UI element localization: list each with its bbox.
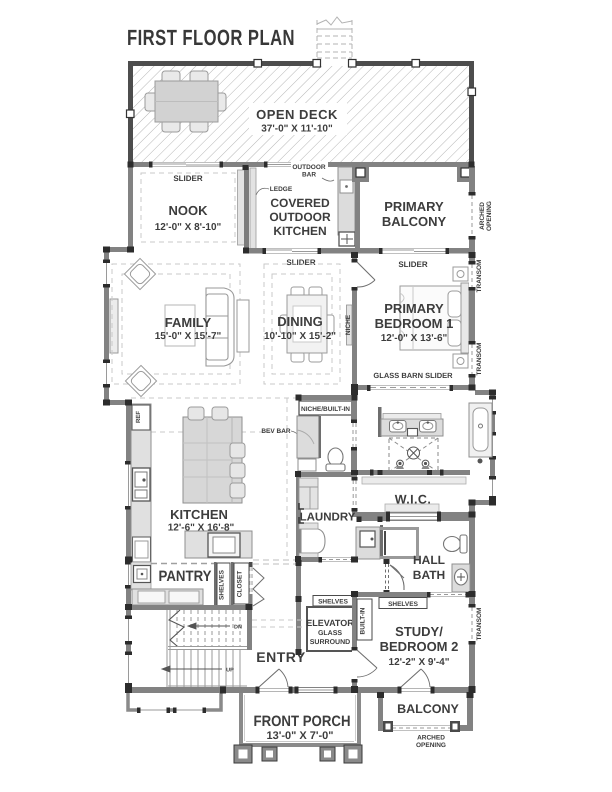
svg-text:BAR: BAR <box>302 172 316 179</box>
svg-text:NICHE: NICHE <box>345 314 352 335</box>
svg-text:STUDY/: STUDY/ <box>395 624 443 639</box>
svg-text:DN: DN <box>234 625 242 631</box>
svg-text:W.I.C.: W.I.C. <box>395 493 431 507</box>
svg-text:BEDROOM 1: BEDROOM 1 <box>375 316 454 331</box>
svg-text:GLASS: GLASS <box>318 630 342 637</box>
svg-text:10'-10" X 15'-2": 10'-10" X 15'-2" <box>264 331 336 342</box>
svg-text:37'-0" X 11'-10": 37'-0" X 11'-10" <box>261 124 333 135</box>
svg-text:FAMILY: FAMILY <box>165 315 212 330</box>
svg-text:SHELVES: SHELVES <box>318 599 349 606</box>
svg-text:BEDROOM 2: BEDROOM 2 <box>380 639 459 654</box>
svg-text:OUTDOOR: OUTDOOR <box>292 164 326 171</box>
svg-text:SLIDER: SLIDER <box>286 258 316 267</box>
svg-text:13'-0" X 7'-0": 13'-0" X 7'-0" <box>266 730 333 742</box>
svg-text:SHELVES: SHELVES <box>388 601 419 608</box>
svg-text:BALCONY: BALCONY <box>382 214 447 229</box>
svg-text:ARCHED: ARCHED <box>417 735 445 742</box>
svg-text:REF: REF <box>135 411 142 423</box>
svg-text:SHELVES: SHELVES <box>219 569 226 600</box>
svg-text:PRIMARY: PRIMARY <box>384 301 444 316</box>
svg-text:BUILT-IN: BUILT-IN <box>360 607 367 634</box>
svg-text:OUTDOOR: OUTDOOR <box>269 210 331 224</box>
svg-text:FIRST FLOOR PLAN: FIRST FLOOR PLAN <box>127 25 295 50</box>
svg-text:UP: UP <box>226 668 234 674</box>
svg-text:DINING: DINING <box>277 314 323 329</box>
svg-text:GLASS BARN SLIDER: GLASS BARN SLIDER <box>373 371 453 380</box>
svg-text:KITCHEN: KITCHEN <box>170 507 228 522</box>
svg-text:PRIMARY: PRIMARY <box>384 199 444 214</box>
svg-text:12'-0" X 13'-6": 12'-0" X 13'-6" <box>381 333 448 344</box>
svg-text:OPENING: OPENING <box>416 742 446 749</box>
svg-text:KITCHEN: KITCHEN <box>273 224 326 238</box>
svg-text:ARCHED: ARCHED <box>479 202 486 230</box>
svg-text:TRANSOM: TRANSOM <box>476 260 483 293</box>
svg-text:BEV BAR: BEV BAR <box>261 428 291 435</box>
svg-text:TRANSOM: TRANSOM <box>476 608 483 641</box>
svg-text:CLOSET: CLOSET <box>237 571 244 597</box>
svg-text:NOOK: NOOK <box>169 203 209 218</box>
svg-text:HALL: HALL <box>413 553 445 567</box>
svg-text:COVERED: COVERED <box>270 196 330 210</box>
svg-text:OPEN DECK: OPEN DECK <box>256 107 338 122</box>
svg-text:LEDGE: LEDGE <box>270 186 293 193</box>
svg-text:FRONT PORCH: FRONT PORCH <box>254 713 351 730</box>
svg-text:BALCONY: BALCONY <box>397 702 459 716</box>
svg-text:PANTRY: PANTRY <box>159 568 212 585</box>
svg-text:OPENING: OPENING <box>486 201 493 231</box>
svg-text:12'-2" X 9'-4": 12'-2" X 9'-4" <box>389 657 450 668</box>
svg-text:SLIDER: SLIDER <box>173 174 203 183</box>
svg-text:12'-0" X 8'-10": 12'-0" X 8'-10" <box>155 222 222 233</box>
svg-text:BATH: BATH <box>413 568 445 582</box>
svg-text:LAUNDRY: LAUNDRY <box>300 512 356 524</box>
svg-text:NICHE/BUILT-IN: NICHE/BUILT-IN <box>301 406 350 413</box>
svg-text:TRANSOM: TRANSOM <box>476 343 483 376</box>
svg-text:SLIDER: SLIDER <box>398 260 428 269</box>
svg-text:15'-0" X 15'-7": 15'-0" X 15'-7" <box>155 331 222 342</box>
svg-text:ELEVATOR: ELEVATOR <box>306 618 354 628</box>
svg-text:SURROUND: SURROUND <box>310 639 350 646</box>
